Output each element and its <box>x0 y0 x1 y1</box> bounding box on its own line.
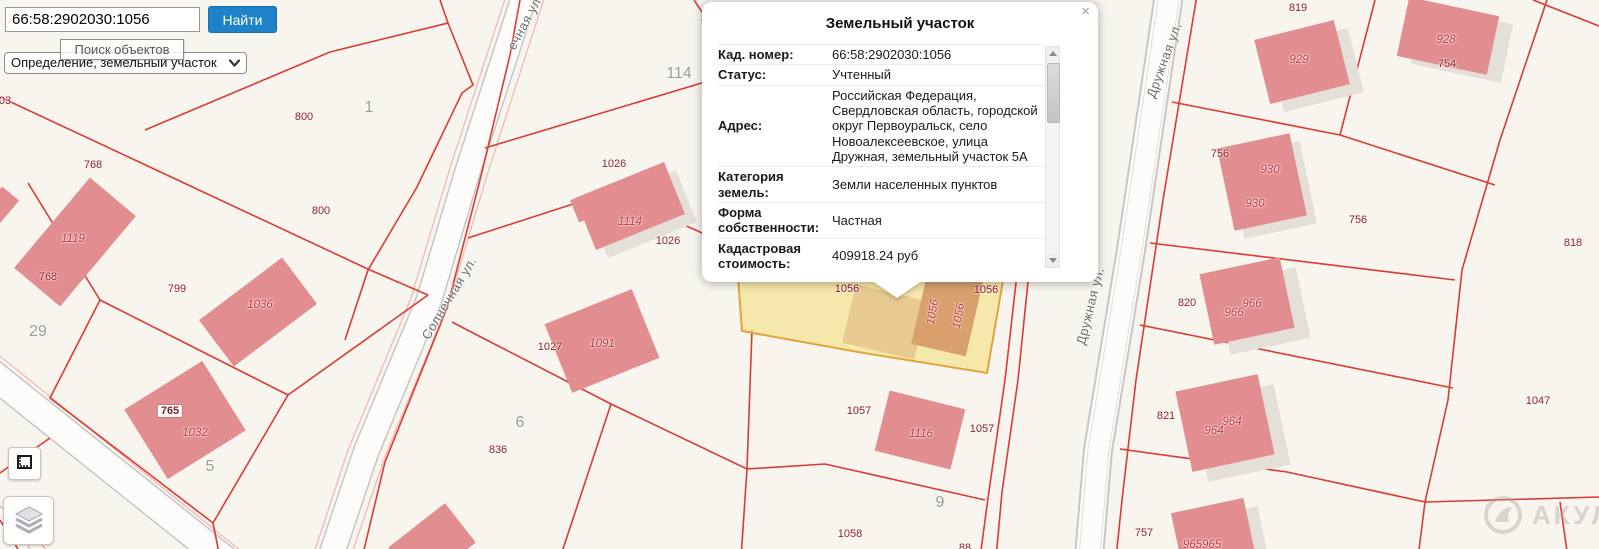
building-shape <box>1175 374 1274 472</box>
popup-scrollbar[interactable] <box>1045 46 1060 268</box>
measure-button[interactable] <box>8 447 41 480</box>
popup-title: Земельный участок <box>702 2 1098 32</box>
popup-field-row: Адрес:Российская Федерация, Свердловская… <box>718 86 1044 168</box>
cadastral-map-app: 0376880080076879981026102610278361056105… <box>0 0 1599 549</box>
info-popup: Земельный участок × Кад. номер:66:58:290… <box>702 2 1098 282</box>
popup-field-row: Кадастровая стоимость:409918.24 руб <box>718 239 1044 273</box>
popup-callout-arrow <box>874 282 920 298</box>
popup-field-row: Форма собственности:Частная <box>718 203 1044 239</box>
chevron-down-icon <box>229 59 240 67</box>
scroll-down-icon[interactable] <box>1046 253 1059 267</box>
popup-field-row: Кад. номер:66:58:2902030:1056 <box>718 45 1044 65</box>
popup-field-row: Статус:Учтенный <box>718 65 1044 85</box>
popup-fields: Кад. номер:66:58:2902030:1056Статус:Учте… <box>718 44 1044 273</box>
scroll-up-icon[interactable] <box>1046 47 1059 61</box>
layers-button[interactable] <box>3 496 54 545</box>
measure-icon <box>15 454 34 473</box>
close-icon[interactable]: × <box>1081 4 1090 20</box>
layers-icon <box>12 505 46 537</box>
popup-field-row: Категория земель:Земли населенных пункто… <box>718 167 1044 203</box>
search-input[interactable] <box>5 7 200 32</box>
search-button[interactable]: Найти <box>208 6 277 33</box>
scrollbar-thumb[interactable] <box>1047 63 1060 123</box>
search-tooltip: Поиск объектов <box>60 39 184 60</box>
